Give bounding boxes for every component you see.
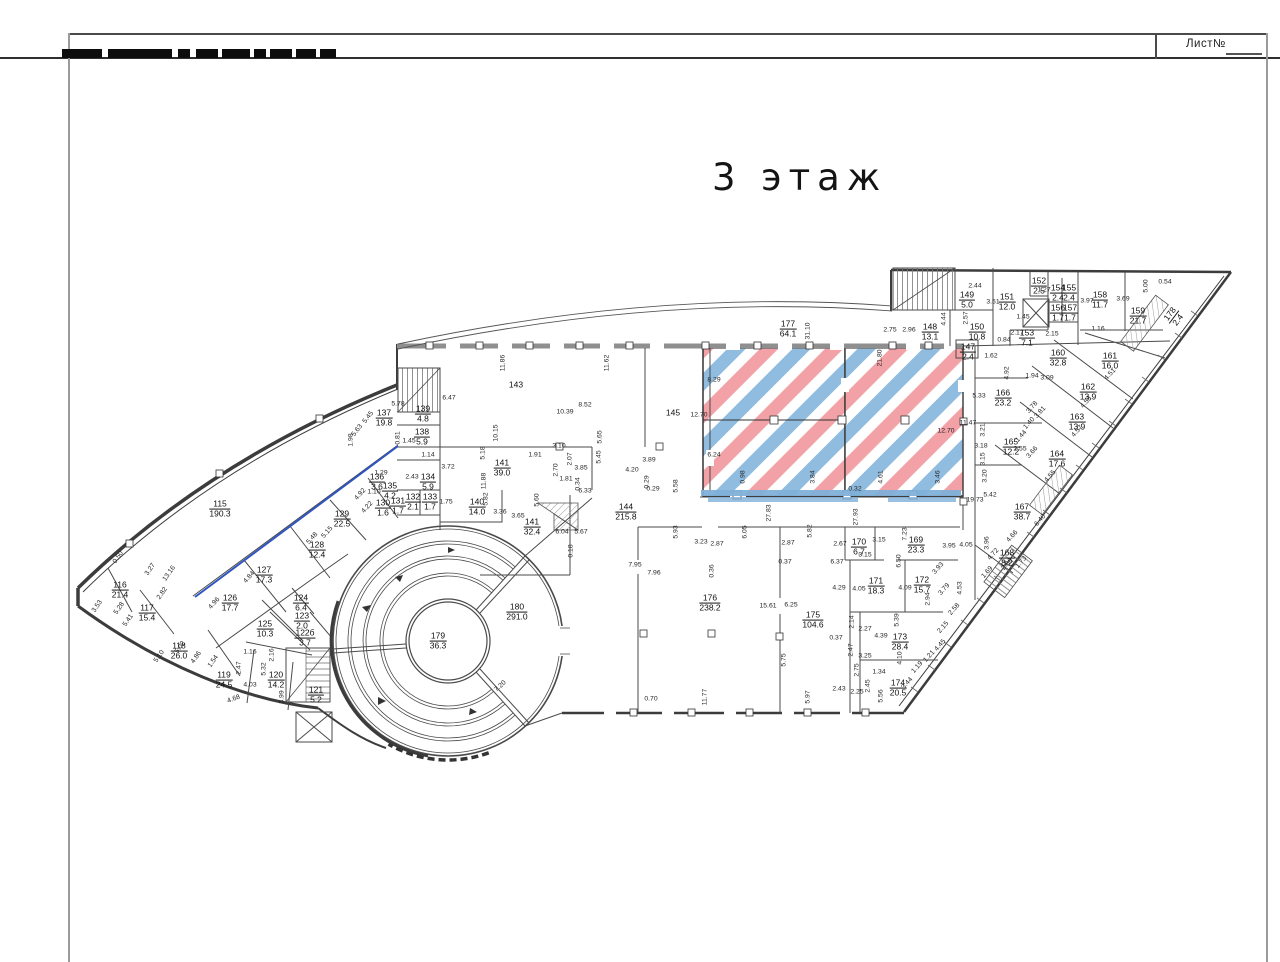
walls-wedge	[108, 445, 398, 710]
shaft-hatch	[538, 503, 578, 530]
staircase-left	[286, 648, 330, 702]
floor-plan	[0, 0, 1280, 962]
circular-ramp	[331, 526, 570, 760]
staircase-right-lower	[984, 545, 1032, 597]
staircase-top-right	[893, 268, 955, 310]
staircase-top-center	[398, 368, 440, 412]
facade-hatch-bands	[1030, 295, 1169, 515]
striped-highlight-zone	[703, 348, 963, 496]
corridor-arc	[398, 302, 892, 349]
